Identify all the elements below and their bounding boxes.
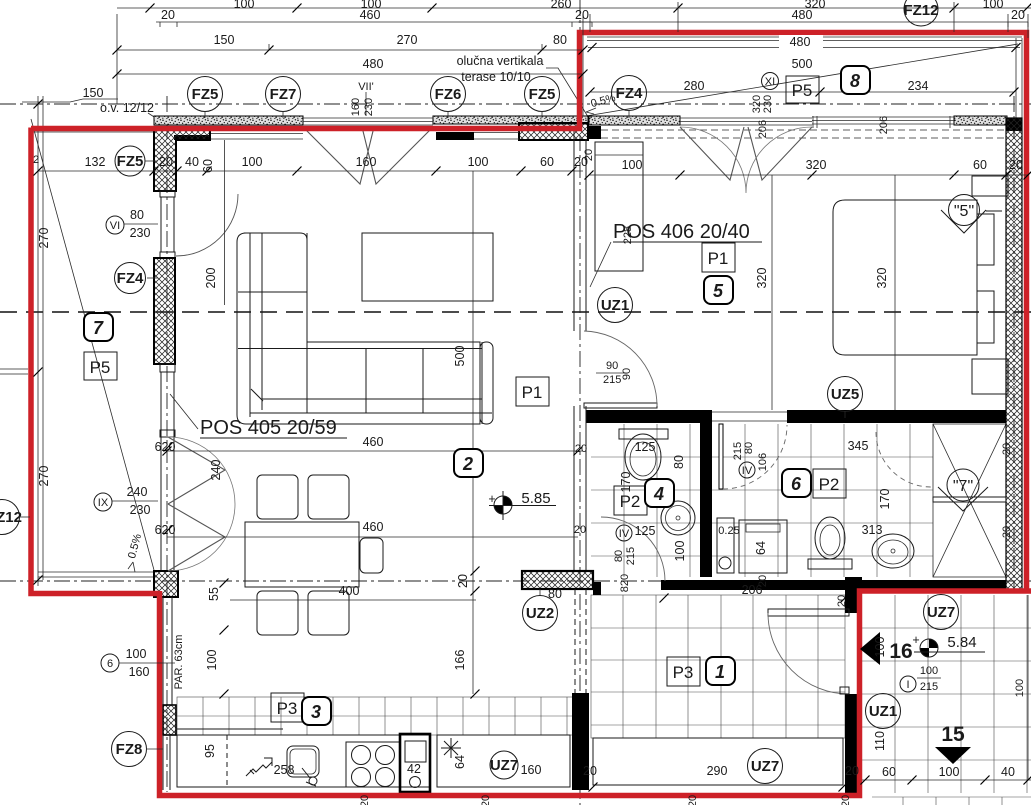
svg-text:160: 160: [521, 763, 542, 777]
svg-text:20: 20: [480, 795, 492, 805]
svg-text:100: 100: [468, 155, 489, 169]
svg-text:345: 345: [848, 439, 869, 453]
svg-text:290: 290: [707, 764, 728, 778]
svg-text:170: 170: [619, 472, 633, 493]
svg-text:VII': VII': [358, 81, 374, 93]
svg-text:P3: P3: [673, 663, 694, 682]
svg-text:UZ7: UZ7: [927, 604, 955, 621]
svg-text:VI: VI: [110, 220, 120, 232]
svg-text:P1: P1: [708, 249, 729, 268]
svg-text:5.84: 5.84: [947, 634, 976, 651]
svg-text:820: 820: [619, 574, 631, 592]
svg-text:313: 313: [862, 523, 883, 537]
svg-text:55: 55: [207, 587, 221, 601]
svg-text:215: 215: [920, 681, 938, 693]
svg-text:240: 240: [209, 460, 223, 481]
svg-text:42: 42: [407, 762, 421, 776]
svg-text:40: 40: [185, 155, 199, 169]
svg-text:POS 406 20/40: POS 406 20/40: [613, 221, 750, 243]
svg-text:40: 40: [1001, 765, 1015, 779]
svg-text:15: 15: [941, 723, 965, 746]
svg-text:320: 320: [875, 268, 889, 289]
svg-text:UZ5: UZ5: [831, 386, 859, 403]
svg-text:125: 125: [635, 524, 656, 538]
svg-text:6: 6: [791, 474, 802, 494]
svg-text:Z12: Z12: [0, 509, 22, 526]
svg-text:20: 20: [845, 764, 859, 778]
svg-text:IX: IX: [98, 497, 109, 509]
svg-text:UZ2: UZ2: [526, 605, 554, 622]
svg-text:258: 258: [274, 763, 295, 777]
svg-text:20: 20: [1001, 443, 1013, 455]
svg-text:460: 460: [363, 520, 384, 534]
svg-text:215: 215: [603, 374, 621, 386]
svg-text:1: 1: [715, 662, 725, 682]
svg-text:4: 4: [653, 484, 664, 504]
svg-text:500: 500: [453, 346, 467, 367]
svg-text:IV: IV: [742, 465, 753, 477]
svg-text:320: 320: [806, 158, 827, 172]
svg-text:20: 20: [575, 443, 587, 455]
svg-text:7: 7: [93, 318, 104, 338]
svg-text:166: 166: [453, 650, 467, 671]
svg-text:P5: P5: [90, 358, 111, 377]
svg-text:"5": "5": [954, 203, 974, 220]
svg-text:POS 405 20/59: POS 405 20/59: [200, 417, 337, 439]
svg-text:20: 20: [840, 795, 852, 805]
svg-text:P3: P3: [277, 699, 298, 718]
svg-text:60: 60: [973, 158, 987, 172]
svg-text:2: 2: [462, 454, 473, 474]
svg-text:20: 20: [456, 574, 470, 588]
svg-text:260: 260: [551, 0, 572, 11]
svg-text:P2: P2: [620, 492, 641, 511]
svg-text:20: 20: [583, 149, 595, 161]
svg-text:20: 20: [836, 595, 848, 607]
svg-text:5: 5: [713, 281, 724, 301]
svg-text:215: 215: [625, 547, 637, 565]
svg-text:FZ6: FZ6: [435, 86, 462, 103]
svg-text:60: 60: [882, 765, 896, 779]
svg-text:280: 280: [684, 79, 705, 93]
svg-text:XI: XI: [765, 76, 775, 88]
svg-text:460: 460: [360, 8, 381, 22]
svg-text:150: 150: [83, 86, 104, 100]
svg-text:UZ7: UZ7: [490, 757, 518, 774]
svg-text:60: 60: [201, 159, 215, 173]
svg-text:P5: P5: [792, 81, 813, 100]
svg-text:80: 80: [613, 550, 625, 562]
svg-text:620: 620: [155, 523, 176, 537]
svg-text:16: 16: [889, 640, 912, 663]
svg-text:160: 160: [356, 155, 377, 169]
svg-text:320: 320: [755, 268, 769, 289]
svg-text:I: I: [906, 679, 909, 691]
svg-text:100: 100: [1014, 679, 1026, 697]
svg-text:100: 100: [920, 665, 938, 677]
svg-text:100: 100: [873, 637, 887, 658]
svg-text:80: 80: [672, 455, 686, 469]
svg-text:480: 480: [363, 57, 384, 71]
svg-text:270: 270: [37, 466, 51, 487]
svg-text:90: 90: [606, 360, 618, 372]
svg-text:64: 64: [453, 755, 467, 769]
svg-text:60: 60: [540, 155, 554, 169]
svg-text:90: 90: [621, 368, 633, 380]
svg-text:160: 160: [129, 665, 150, 679]
svg-text:terase 10/10: terase 10/10: [461, 70, 531, 84]
svg-text:6: 6: [107, 658, 113, 670]
svg-text:0.25: 0.25: [718, 525, 739, 537]
svg-text:FZ8: FZ8: [116, 741, 143, 758]
svg-text:20: 20: [1001, 526, 1013, 538]
svg-text:P1: P1: [522, 383, 543, 402]
svg-text:80: 80: [130, 208, 144, 222]
svg-text:FZ5: FZ5: [529, 86, 556, 103]
svg-text:80: 80: [743, 442, 755, 454]
svg-text:IV: IV: [619, 528, 630, 540]
svg-text:230: 230: [762, 95, 774, 113]
svg-text:20: 20: [574, 524, 586, 536]
svg-text:400: 400: [339, 584, 360, 598]
svg-text:FZ5: FZ5: [192, 86, 219, 103]
svg-text:20: 20: [583, 764, 597, 778]
svg-text:20: 20: [687, 795, 699, 805]
svg-text:20: 20: [757, 575, 769, 587]
svg-text:100: 100: [205, 650, 219, 671]
svg-text:P2: P2: [819, 475, 840, 494]
svg-text:FZ4: FZ4: [117, 270, 144, 287]
svg-text:206: 206: [757, 120, 769, 138]
svg-text:+: +: [912, 633, 919, 647]
svg-text:20: 20: [161, 8, 175, 22]
svg-text:100: 100: [126, 647, 147, 661]
svg-text:150: 150: [214, 33, 235, 47]
svg-text:olučna vertikala: olučna vertikala: [457, 54, 544, 68]
svg-text:500: 500: [792, 57, 813, 71]
svg-text:FZ12: FZ12: [903, 2, 938, 19]
svg-text:620: 620: [155, 440, 176, 454]
svg-text:PAR. 63cm: PAR. 63cm: [173, 635, 185, 690]
svg-text:125: 125: [635, 440, 656, 454]
svg-text:UZ7: UZ7: [751, 758, 779, 775]
svg-text:160: 160: [350, 98, 362, 116]
svg-text:20: 20: [1011, 8, 1025, 22]
svg-text:170: 170: [878, 489, 892, 510]
svg-text:2: 2: [33, 154, 39, 166]
svg-text:480: 480: [792, 8, 813, 22]
svg-text:460: 460: [363, 435, 384, 449]
svg-text:106: 106: [757, 453, 769, 471]
svg-text:o.v. 12/12: o.v. 12/12: [100, 101, 154, 115]
svg-text:480: 480: [790, 35, 811, 49]
svg-text:234: 234: [908, 79, 929, 93]
svg-text:230: 230: [363, 98, 375, 116]
svg-text:230: 230: [130, 226, 151, 240]
svg-text:206: 206: [878, 116, 890, 134]
svg-text:20: 20: [1009, 158, 1023, 172]
svg-text:20: 20: [575, 8, 589, 22]
svg-text:100: 100: [939, 765, 960, 779]
svg-text:8: 8: [850, 71, 860, 91]
svg-text:FZ4: FZ4: [616, 85, 643, 102]
svg-text:132: 132: [85, 155, 106, 169]
svg-text:3: 3: [311, 702, 321, 722]
svg-text:20: 20: [359, 795, 371, 805]
svg-text:80: 80: [553, 33, 567, 47]
svg-text:5.85: 5.85: [521, 490, 550, 507]
svg-text:100: 100: [673, 541, 687, 562]
svg-text:"7": "7": [953, 478, 973, 495]
svg-text:UZ1: UZ1: [601, 297, 629, 314]
svg-text:FZ5: FZ5: [117, 153, 144, 170]
svg-text:100: 100: [234, 0, 255, 11]
svg-text:64: 64: [754, 541, 768, 555]
svg-text:100: 100: [242, 155, 263, 169]
svg-text:230: 230: [130, 503, 151, 517]
svg-text:200: 200: [204, 268, 218, 289]
svg-text:95: 95: [203, 744, 217, 758]
svg-text:20: 20: [159, 155, 173, 169]
svg-text:FZ7: FZ7: [270, 86, 297, 103]
svg-text:100: 100: [622, 158, 643, 172]
svg-text:UZ1: UZ1: [869, 703, 897, 720]
svg-text:100: 100: [983, 0, 1004, 11]
svg-text:240: 240: [127, 485, 148, 499]
svg-text:270: 270: [397, 33, 418, 47]
svg-text:270: 270: [37, 228, 51, 249]
svg-text:110: 110: [873, 731, 887, 751]
